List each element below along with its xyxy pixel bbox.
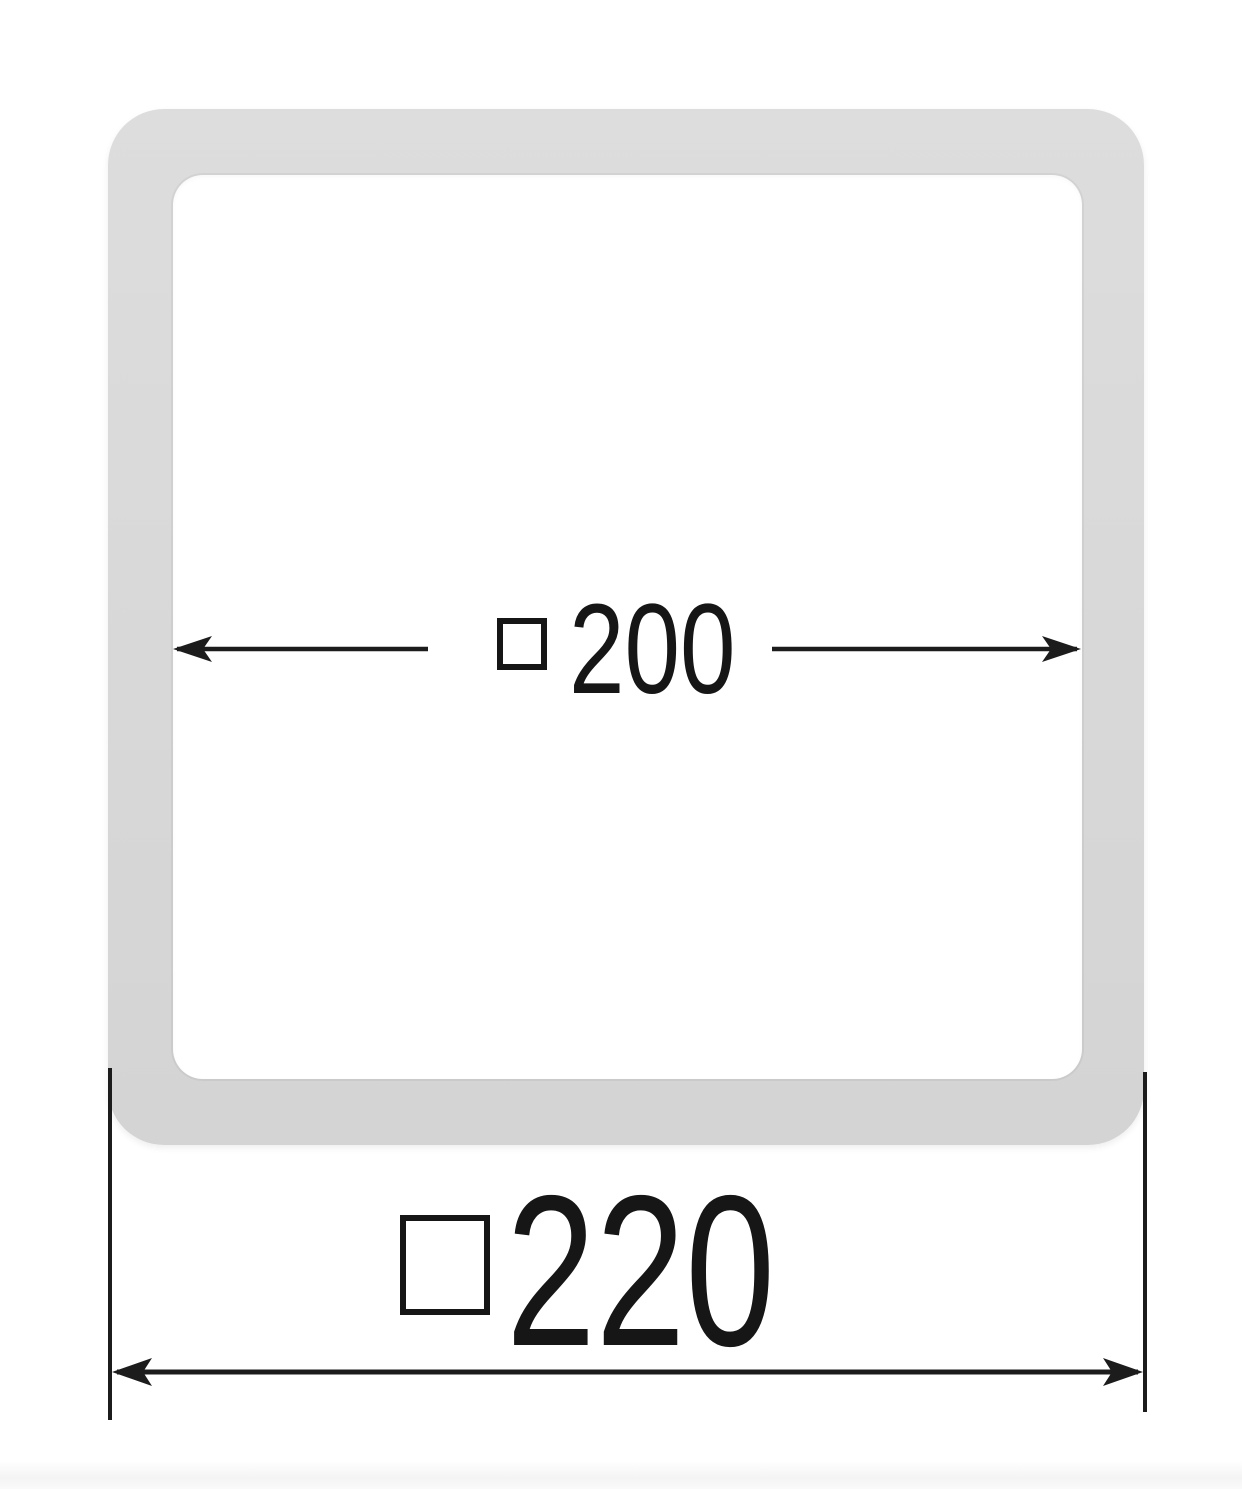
outer-dimension-arrow-right-icon — [1103, 1358, 1143, 1386]
outer-dimension-arrow-left-icon — [112, 1358, 152, 1386]
drawing-canvas: 200 220 — [0, 0, 1242, 1489]
inner-dimension-label: 200 — [497, 592, 783, 707]
outer-dimension-value: 220 — [506, 1163, 775, 1378]
outer-dimension-label: 220 — [400, 1190, 865, 1350]
inner-dimension-value: 200 — [569, 586, 736, 714]
square-symbol-icon — [497, 618, 547, 670]
photo-edge-band — [0, 1461, 1242, 1489]
square-symbol-icon — [400, 1215, 490, 1315]
